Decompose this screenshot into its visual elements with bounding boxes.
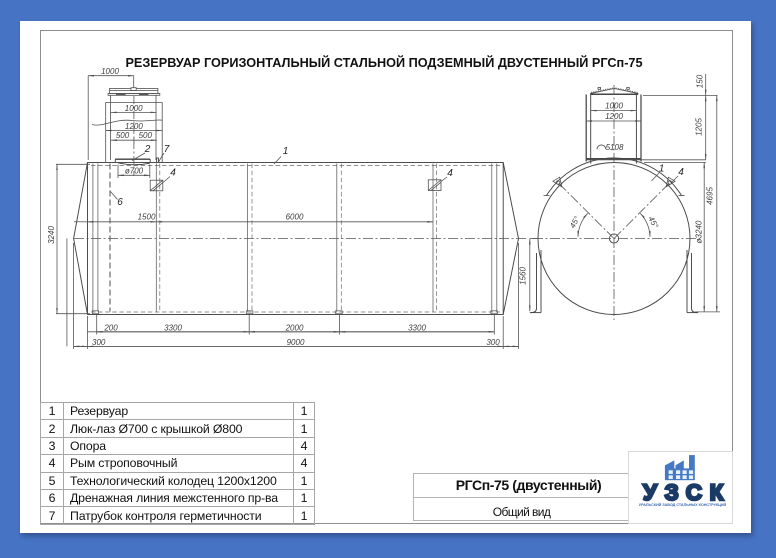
svg-text:500: 500 (139, 131, 153, 140)
svg-text:1200: 1200 (125, 122, 143, 131)
svg-text:1000: 1000 (125, 104, 143, 113)
svg-text:2000: 2000 (285, 324, 304, 333)
svg-text:4695: 4695 (706, 187, 715, 205)
svg-text:300: 300 (486, 338, 500, 347)
svg-text:1: 1 (659, 164, 665, 175)
svg-text:1200: 1200 (605, 112, 623, 121)
svg-text:3240: 3240 (47, 226, 56, 244)
svg-text:4: 4 (447, 168, 453, 179)
svg-text:1000: 1000 (605, 102, 623, 111)
svg-text:1560: 1560 (519, 267, 528, 285)
svg-text:500: 500 (116, 131, 130, 140)
svg-text:9000: 9000 (287, 338, 305, 347)
svg-text:1000: 1000 (101, 67, 119, 76)
svg-text:150: 150 (695, 74, 704, 88)
svg-text:5108: 5108 (606, 143, 624, 152)
svg-text:300: 300 (92, 338, 106, 347)
svg-text:1500: 1500 (138, 213, 156, 222)
svg-text:7: 7 (164, 144, 170, 155)
svg-text:ø700: ø700 (125, 167, 144, 176)
svg-text:УРАЛЬСКИЙ ЗАВОД СТАЛЬНЫХ КОНСТ: УРАЛЬСКИЙ ЗАВОД СТАЛЬНЫХ КОНСТРУКЦИЙ (639, 503, 727, 507)
svg-text:1: 1 (283, 146, 289, 157)
svg-text:2: 2 (144, 144, 151, 155)
svg-text:4: 4 (678, 167, 684, 178)
svg-text:6000: 6000 (286, 213, 304, 222)
svg-text:3300: 3300 (164, 324, 182, 333)
svg-text:3300: 3300 (408, 324, 426, 333)
svg-text:200: 200 (103, 324, 118, 333)
svg-text:6: 6 (117, 197, 123, 208)
svg-text:4: 4 (170, 168, 176, 179)
svg-text:1205: 1205 (695, 118, 704, 136)
svg-text:ø3240: ø3240 (695, 220, 704, 243)
